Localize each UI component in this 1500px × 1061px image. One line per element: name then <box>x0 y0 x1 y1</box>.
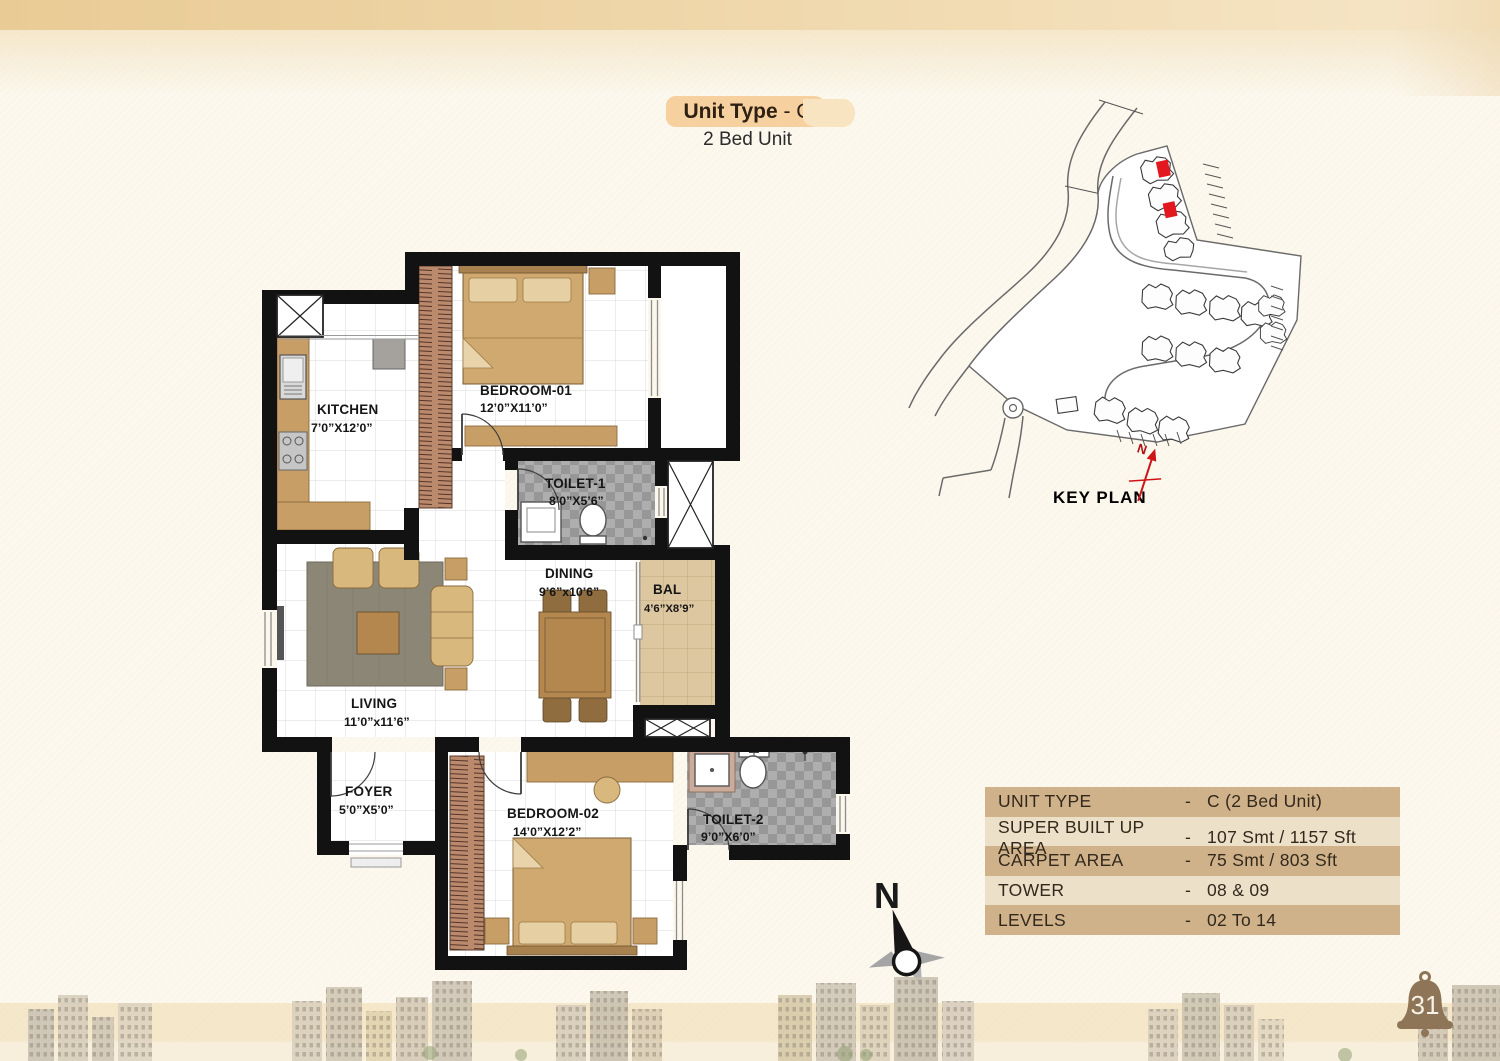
page-number-bell-icon: 31 <box>1390 968 1460 1050</box>
top-decor-fade <box>0 30 1500 96</box>
north-compass-label: N <box>874 875 900 916</box>
room-label-bedroom-01: BEDROOM-01 <box>480 383 572 398</box>
room-dims-foyer: 5’0”X5’0” <box>339 803 394 817</box>
room-dims-kitchen: 7’0”X12’0” <box>311 421 373 435</box>
key-plan-title: KEY PLAN <box>1053 488 1147 507</box>
unit-subtitle: 2 Bed Unit <box>650 129 845 151</box>
room-dims-toilet-2: 9’0”X6’0” <box>701 830 756 844</box>
page-number: 31 <box>1411 990 1440 1020</box>
room-dims-bedroom-02: 14’0”X12’2” <box>513 825 581 839</box>
room-label-bedroom-02: BEDROOM-02 <box>507 806 599 821</box>
room-dims-toilet-1: 8’0”X5’6” <box>549 494 604 508</box>
room-dims-bal: 4’6”X8’9” <box>644 603 694 615</box>
spec-row-carpet-area: CARPET AREA - 75 Smt / 803 Sft <box>985 846 1400 876</box>
room-label-dining: DINING <box>545 566 593 581</box>
key-plan: KEY PLAN N <box>905 98 1305 518</box>
room-dims-bedroom-01: 12’0”X11’0” <box>480 401 548 415</box>
floor-plan: BEDROOM-01 12’0”X11’0” KITCHEN 7’0”X12’0… <box>255 240 855 980</box>
spec-table: UNIT TYPE - C (2 Bed Unit) SUPER BUILT U… <box>985 787 1400 935</box>
room-label-kitchen: KITCHEN <box>317 402 378 417</box>
spec-row-levels: LEVELS - 02 To 14 <box>985 905 1400 935</box>
room-label-toilet-2: TOILET-2 <box>703 812 764 827</box>
room-label-bal: BAL <box>653 582 681 597</box>
room-label-foyer: FOYER <box>345 784 393 799</box>
spec-row-tower: TOWER - 08 & 09 <box>985 876 1400 906</box>
spec-row-super-built-up: SUPER BUILT UP AREA - 107 Smt / 1157 Sft <box>985 817 1400 847</box>
room-label-living: LIVING <box>351 696 397 711</box>
unit-type-badge: Unit Type - C <box>666 96 829 127</box>
unit-type-label: Unit Type <box>684 100 778 124</box>
room-dims-living: 11’0”x11’6” <box>344 715 410 729</box>
right-decor-seam <box>1393 0 1500 96</box>
brochure-page: { "page": { "number": "31" }, "colors": … <box>0 0 1500 1061</box>
unit-type-value: - C <box>778 100 812 124</box>
room-dims-dining: 9’6”x10’6” <box>539 585 599 599</box>
top-decor-band <box>0 0 1500 30</box>
skyline-footer <box>0 969 1500 1061</box>
room-label-toilet-1: TOILET-1 <box>545 476 606 491</box>
spec-row-unit-type: UNIT TYPE - C (2 Bed Unit) <box>985 787 1400 817</box>
key-plan-north-label: N <box>1135 441 1149 458</box>
